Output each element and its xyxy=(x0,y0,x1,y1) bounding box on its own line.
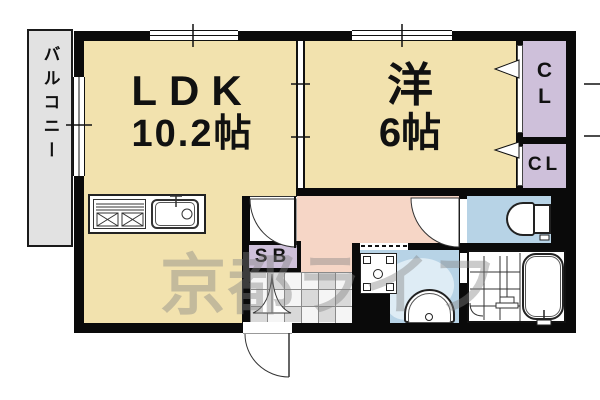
wall-bottom xyxy=(74,323,576,333)
stove-icon xyxy=(93,199,146,229)
wall-toilet-side xyxy=(551,196,567,250)
window-top-right xyxy=(352,30,452,41)
bathtub-inner xyxy=(525,256,561,317)
entrance-door-swing-icon xyxy=(245,334,289,377)
ldk-label: LDK xyxy=(95,68,290,114)
closet-top-label: C L xyxy=(523,58,566,110)
balcony-label: バルコニー xyxy=(38,45,63,165)
ldk-label-group: LDK 10.2帖 xyxy=(95,68,290,156)
western-room-size: 6帖 xyxy=(330,111,490,155)
toilet-door-gap xyxy=(460,199,467,243)
toilet-tank xyxy=(533,204,551,234)
ldk-door-swing-area xyxy=(250,196,297,247)
western-room-label-group: 洋 6帖 xyxy=(330,60,490,155)
ldk-size: 10.2帖 xyxy=(95,114,290,156)
entrance-door-gap xyxy=(243,322,292,334)
wall-right xyxy=(566,31,576,333)
western-room-label: 洋 xyxy=(330,60,490,111)
window-top-left xyxy=(150,30,238,41)
balcony: バルコニー xyxy=(27,29,73,247)
sliding-partition xyxy=(296,41,305,188)
window-balcony xyxy=(73,77,85,176)
watermark: 京都ライフ xyxy=(160,250,500,320)
wall-closet-divider xyxy=(516,137,566,144)
closet-bottom-label: CL xyxy=(523,155,566,176)
sink-bowl xyxy=(155,202,195,226)
hallway xyxy=(297,196,459,243)
floor-plan: バルコニー SB xyxy=(0,0,600,400)
wall-mid-horizontal xyxy=(296,188,566,196)
